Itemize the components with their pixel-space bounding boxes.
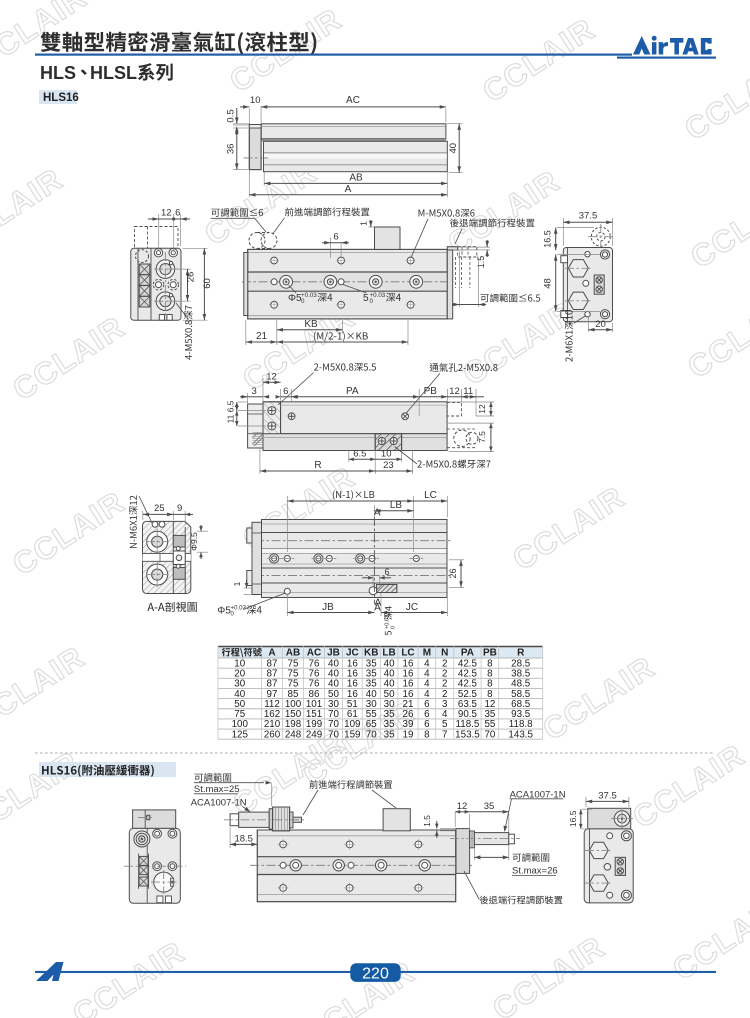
svg-text:70: 70 [366,729,377,740]
svg-text:A: A [374,598,381,609]
svg-text:JC: JC [406,602,418,613]
svg-text:JC: JC [346,648,359,659]
svg-text:260: 260 [264,729,281,740]
svg-text:7: 7 [442,729,447,740]
svg-text:HLS: HLS [40,63,76,83]
svg-text:6: 6 [175,208,180,219]
svg-text:159: 159 [344,729,360,740]
svg-text:Φ5: Φ5 [217,606,231,617]
svg-text:0: 0 [301,298,305,305]
svg-text:1.5: 1.5 [476,256,486,269]
svg-text:10: 10 [250,95,261,106]
svg-text:AB: AB [349,173,363,184]
svg-text:12: 12 [161,208,172,219]
svg-text:19: 19 [403,729,414,740]
svg-text:23: 23 [383,460,394,471]
svg-text:LC: LC [424,490,437,501]
svg-text:Φ5: Φ5 [288,293,302,304]
svg-text:KB: KB [364,648,378,659]
svg-text:10: 10 [381,448,392,459]
svg-text:1: 1 [358,221,368,226]
svg-text:PB: PB [483,648,497,659]
svg-text:JB: JB [327,648,340,659]
svg-text:153.5: 153.5 [455,729,480,740]
svg-text:A: A [374,508,381,519]
svg-text:16.5: 16.5 [543,230,553,248]
svg-text:Φ9.5: Φ9.5 [189,532,199,551]
svg-text:A: A [345,184,352,195]
svg-text:220: 220 [362,965,389,982]
svg-text:6.5: 6.5 [225,400,235,412]
svg-text:1: 1 [232,581,242,586]
svg-text:11: 11 [463,386,473,397]
svg-text:0.5: 0.5 [226,109,237,122]
svg-text:ACA1007-1N: ACA1007-1N [191,798,247,809]
svg-text:35: 35 [384,729,395,740]
svg-text:0: 0 [390,626,396,629]
svg-text:12: 12 [266,371,277,382]
svg-text:11: 11 [225,414,235,423]
svg-text:26: 26 [185,272,196,283]
svg-text:JB: JB [322,602,334,613]
svg-text:6: 6 [283,386,288,397]
svg-text:37.5: 37.5 [579,211,598,222]
svg-text:70: 70 [484,729,495,740]
svg-text:PA: PA [346,386,359,397]
svg-text:LC: LC [401,648,414,659]
svg-text:A: A [268,648,275,659]
svg-text:St.max=26: St.max=26 [512,866,558,877]
svg-text:70: 70 [328,729,339,740]
svg-text:6: 6 [384,567,389,577]
svg-text:16.5: 16.5 [568,810,578,827]
svg-text:KB: KB [304,319,318,330]
svg-text:248: 248 [285,729,302,740]
svg-text:R: R [314,460,321,471]
svg-text:12: 12 [477,404,487,414]
svg-text:AC: AC [346,95,360,106]
svg-text:LB: LB [382,648,395,659]
svg-text:AB: AB [286,648,300,659]
svg-text:40: 40 [448,143,459,154]
svg-text:249: 249 [306,729,322,740]
svg-text:M: M [423,648,431,659]
svg-text:25: 25 [154,503,165,514]
svg-text:3: 3 [252,386,257,397]
svg-text:26: 26 [448,568,458,578]
svg-text:PA: PA [461,648,474,659]
svg-text:7.5: 7.5 [477,431,487,443]
svg-text:12: 12 [449,386,460,397]
svg-text:48: 48 [543,278,554,289]
svg-text:21: 21 [256,331,268,342]
svg-text:143.5: 143.5 [508,729,533,740]
svg-text:35: 35 [484,801,495,812]
svg-text:60: 60 [202,278,213,289]
svg-text:1.5: 1.5 [422,815,432,827]
svg-text:9: 9 [177,503,182,514]
svg-text:6: 6 [333,232,338,243]
svg-text:37.5: 37.5 [598,790,617,801]
svg-text:20: 20 [595,319,606,330]
svg-text:6.5: 6.5 [353,448,366,459]
svg-text:PB: PB [424,386,438,397]
svg-text:0: 0 [230,610,234,617]
svg-text:12: 12 [457,801,468,812]
svg-text:HLS16: HLS16 [43,92,79,104]
svg-text:St.max=25: St.max=25 [194,784,240,795]
svg-text:AC: AC [307,648,321,659]
svg-text:HLSL: HLSL [90,63,137,83]
svg-text:N: N [441,648,448,659]
svg-text:8: 8 [424,729,430,740]
svg-text:5: 5 [363,293,369,304]
svg-text:R: R [517,648,525,659]
svg-text:18.5: 18.5 [234,834,253,845]
svg-text:125: 125 [232,729,249,740]
svg-text:LB: LB [390,500,403,511]
svg-text:0: 0 [370,298,374,305]
svg-text:36: 36 [226,144,237,155]
